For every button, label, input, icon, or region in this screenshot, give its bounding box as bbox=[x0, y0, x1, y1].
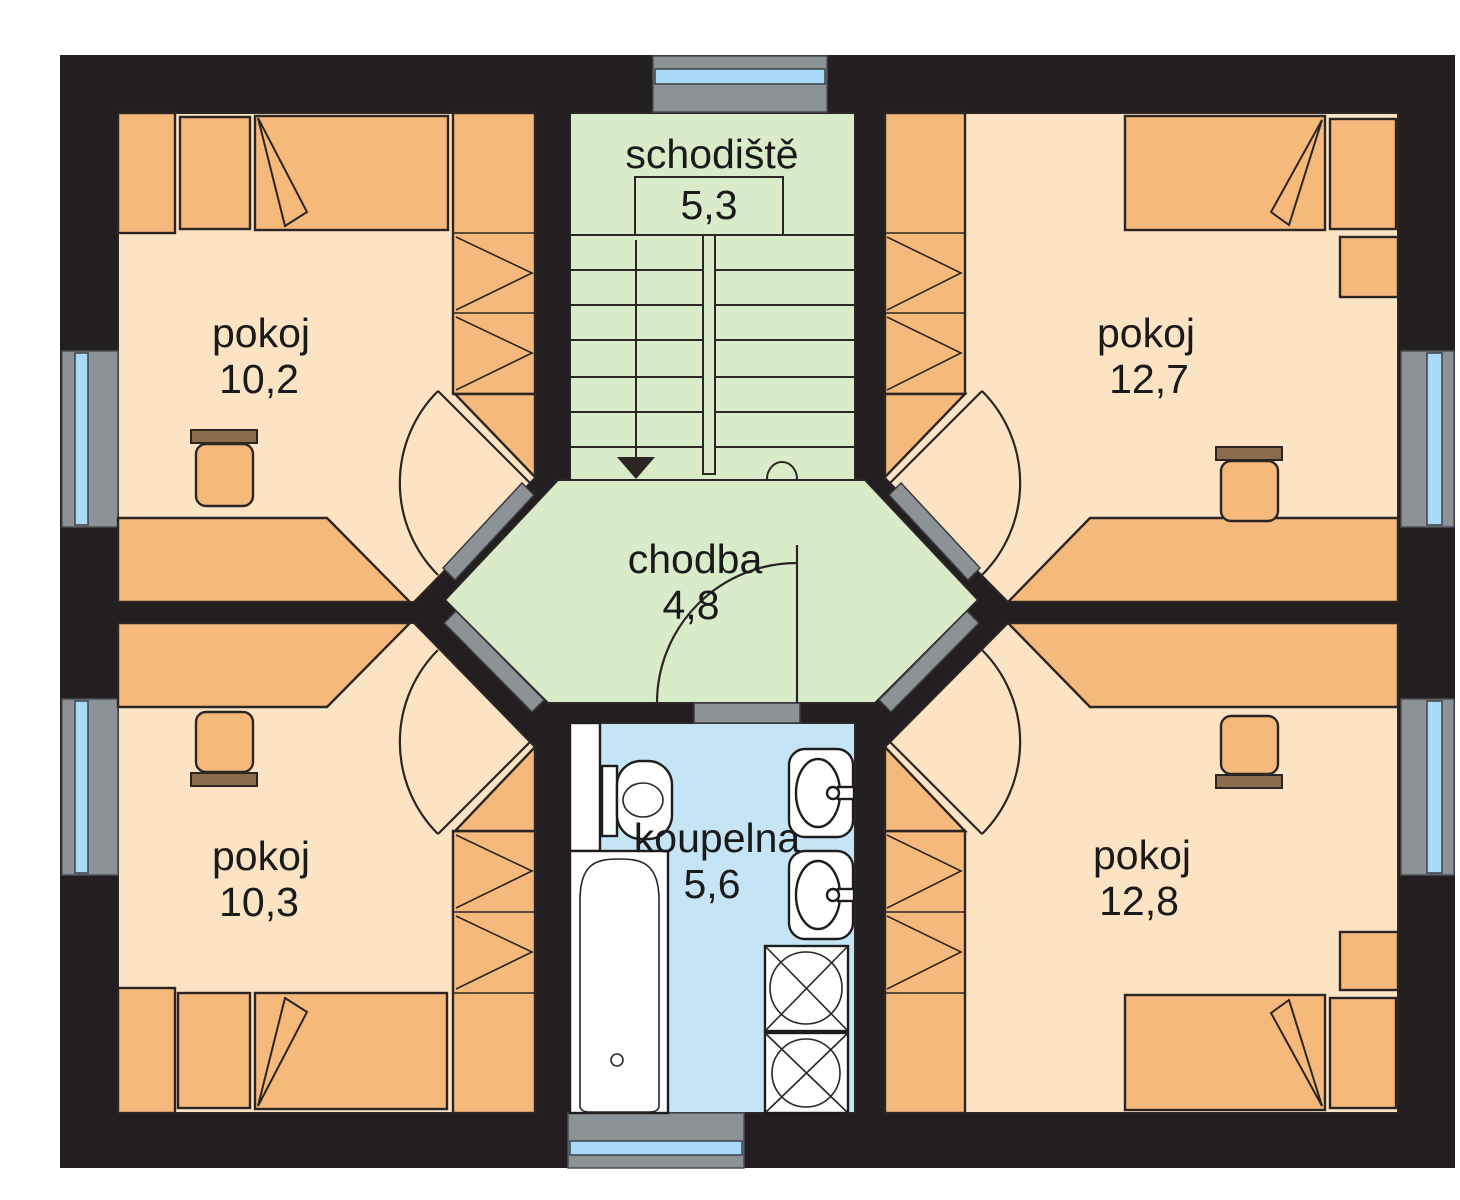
chair bbox=[1221, 716, 1278, 774]
washing-machine bbox=[765, 946, 848, 1031]
bed bbox=[255, 993, 447, 1109]
cabinet bbox=[118, 988, 175, 1113]
bed bbox=[255, 116, 448, 230]
window-bottom bbox=[568, 1113, 744, 1168]
window-glass bbox=[1427, 701, 1442, 873]
label-chodba: chodba bbox=[628, 536, 763, 582]
area-chodba: 4,8 bbox=[663, 582, 720, 628]
area-schodiste: 5,3 bbox=[681, 182, 738, 228]
wardrobe bbox=[453, 831, 535, 1113]
label-schodiste: schodiště bbox=[625, 131, 798, 177]
bed bbox=[1125, 116, 1325, 230]
sink-tap-head bbox=[827, 889, 839, 901]
bed-pillow bbox=[178, 993, 250, 1108]
label-pokoj-bottom-left: pokoj bbox=[212, 833, 310, 879]
label-koupelna: koupelna bbox=[634, 815, 801, 861]
chair-backrest bbox=[1216, 775, 1282, 788]
nightstand bbox=[1340, 237, 1398, 297]
window-glass bbox=[75, 353, 88, 525]
wardrobe bbox=[885, 831, 965, 1113]
window-frame bbox=[62, 699, 118, 875]
sink-tap bbox=[838, 787, 854, 799]
window-glass bbox=[1427, 353, 1442, 525]
wardrobe bbox=[885, 113, 965, 394]
chair bbox=[1221, 461, 1278, 521]
area-pokoj-bottom-right: 12,8 bbox=[1099, 878, 1179, 924]
area-pokoj-bottom-left: 10,3 bbox=[219, 879, 299, 925]
floor-plan-page: pokoj 10,2 schodiště 5,3 pokoj 12,7 chod… bbox=[0, 0, 1460, 1200]
window-glass bbox=[655, 69, 825, 84]
area-pokoj-top-left: 10,2 bbox=[219, 356, 299, 402]
window-top bbox=[653, 56, 827, 112]
sink-tap-head bbox=[827, 787, 839, 799]
bathtub bbox=[570, 851, 668, 1113]
bed-pillow bbox=[180, 117, 250, 229]
label-pokoj-top-right: pokoj bbox=[1097, 310, 1195, 356]
window-left-bottom bbox=[62, 699, 118, 875]
chair bbox=[196, 444, 253, 506]
chair bbox=[196, 712, 253, 772]
window-glass bbox=[75, 701, 88, 873]
bathroom-ledge bbox=[570, 723, 600, 851]
window-right-top bbox=[1401, 351, 1454, 527]
chair-backrest bbox=[1216, 447, 1282, 460]
area-pokoj-top-right: 12,7 bbox=[1109, 356, 1189, 402]
label-pokoj-bottom-right: pokoj bbox=[1093, 832, 1191, 878]
nightstand bbox=[1340, 932, 1398, 990]
bed bbox=[1125, 995, 1325, 1110]
chair-backrest bbox=[191, 430, 257, 443]
bed-pillow bbox=[1330, 119, 1396, 229]
area-koupelna: 5,6 bbox=[684, 861, 741, 907]
window-glass bbox=[570, 1141, 742, 1155]
washing-machine bbox=[765, 1033, 848, 1113]
label-pokoj-top-left: pokoj bbox=[212, 310, 310, 356]
cabinet bbox=[118, 113, 175, 233]
floor-plan-drawing: pokoj 10,2 schodiště 5,3 pokoj 12,7 chod… bbox=[0, 0, 1460, 1200]
window-frame bbox=[62, 351, 118, 527]
chair-backrest bbox=[191, 773, 257, 786]
sink-tap bbox=[838, 889, 854, 901]
wardrobe bbox=[453, 113, 535, 394]
toilet-tank bbox=[602, 766, 617, 836]
bed-pillow bbox=[1330, 998, 1396, 1108]
window-right-bottom bbox=[1401, 699, 1454, 875]
window-left-top bbox=[62, 351, 118, 527]
door-threshold-bathroom bbox=[694, 703, 800, 723]
